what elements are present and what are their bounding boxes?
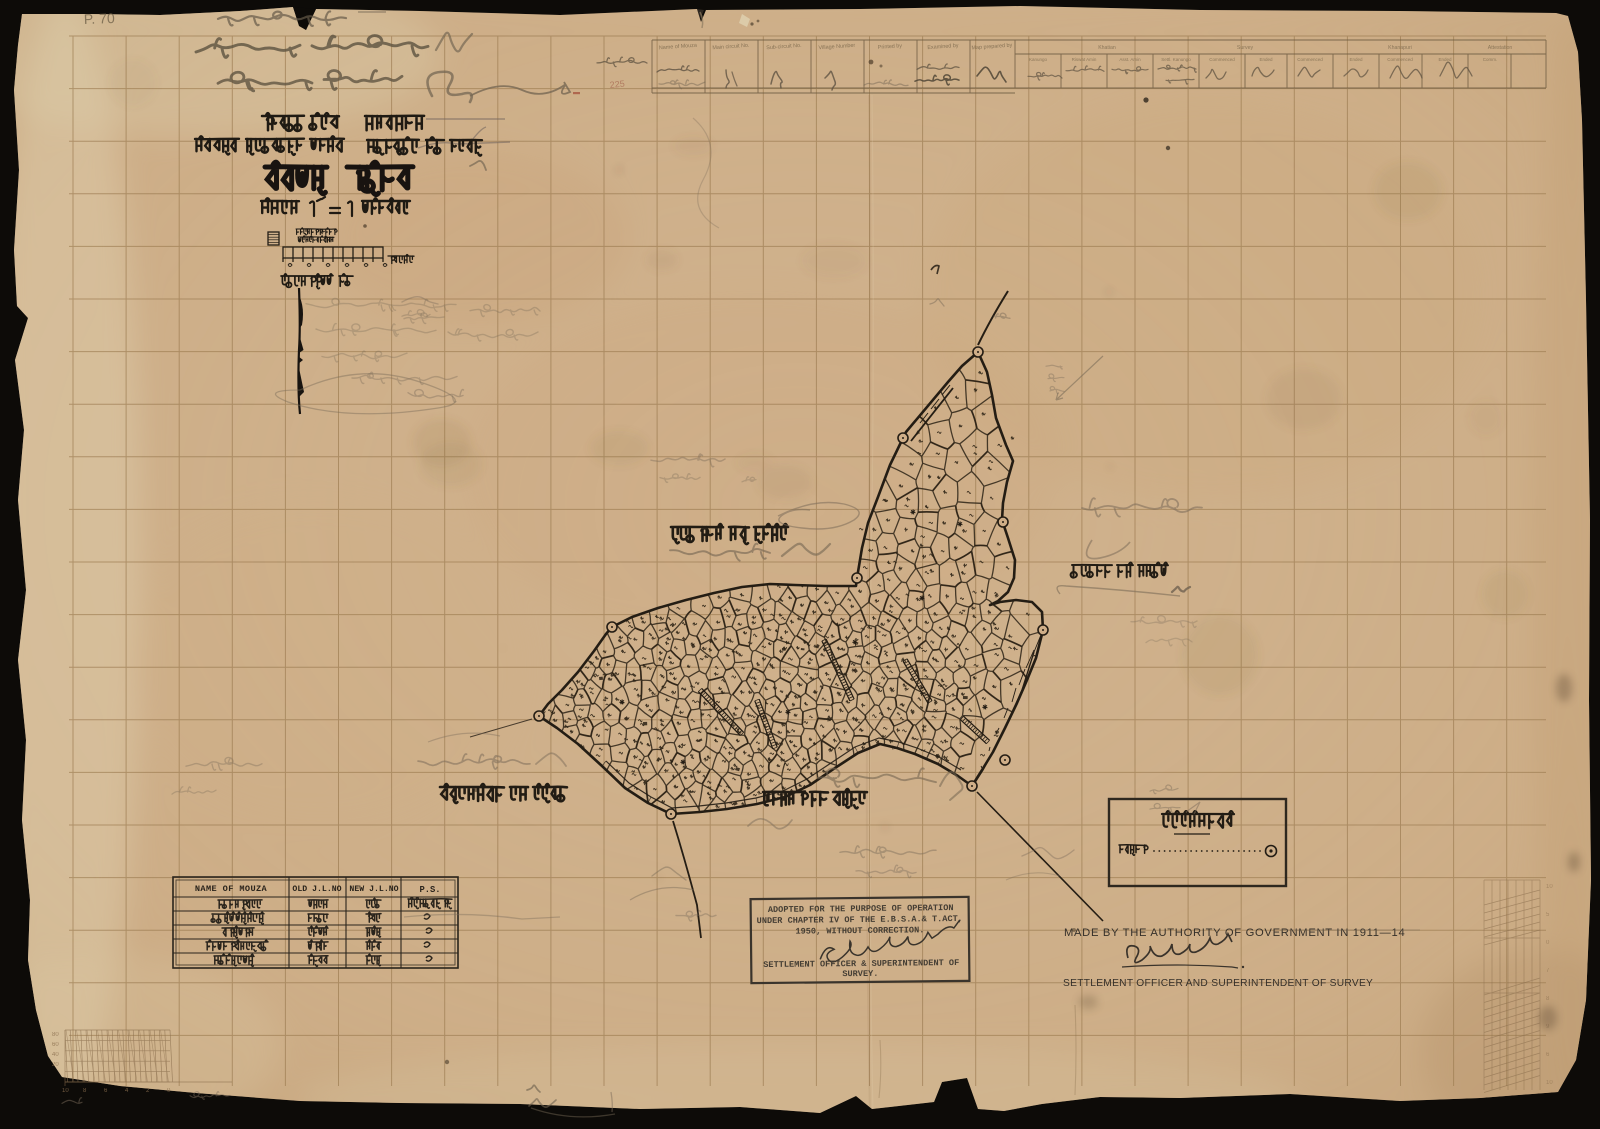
svg-text:NAME OF MOUZA: NAME OF MOUZA [195, 884, 268, 894]
svg-text:Attestation: Attestation [1488, 45, 1513, 51]
svg-text:60: 60 [52, 1042, 59, 1048]
svg-text:MADE BY THE AUTHORITY OF GOVER: MADE BY THE AUTHORITY OF GOVERNMENT IN 1… [1064, 927, 1405, 939]
svg-text:Survey: Survey [1237, 45, 1254, 51]
svg-text:SURVEY.: SURVEY. [842, 969, 878, 979]
svg-text:225: 225 [609, 78, 625, 90]
svg-text:P. 70: P. 70 [84, 10, 116, 27]
svg-text:40: 40 [52, 1052, 59, 1058]
svg-text:Ended: Ended [1349, 57, 1363, 62]
svg-text:10: 10 [1546, 1080, 1553, 1086]
svg-text:Settl. Kanungo: Settl. Kanungo [1161, 57, 1191, 62]
svg-text:Riswat Amin: Riswat Amin [1072, 57, 1097, 62]
svg-text:SETTLEMENT OFFICER AND SUPERIN: SETTLEMENT OFFICER AND SUPERINTENDENT OF… [1063, 978, 1373, 989]
svg-text:Commenced: Commenced [1387, 57, 1413, 62]
svg-text:P.S.: P.S. [419, 885, 440, 895]
svg-text:20: 20 [52, 1062, 59, 1068]
svg-text:Khanapuri: Khanapuri [1388, 45, 1412, 51]
svg-text:1950, WITHOUT CORRECTION.: 1950, WITHOUT CORRECTION. [795, 925, 924, 936]
svg-text:Comm.: Comm. [1483, 57, 1498, 62]
svg-text:OLD J.L.NO: OLD J.L.NO [292, 885, 341, 894]
svg-text:ADOPTED FOR THE PURPOSE OF OPE: ADOPTED FOR THE PURPOSE OF OPERATION [768, 903, 954, 915]
svg-text:Khatian: Khatian [1098, 45, 1116, 51]
svg-text:10: 10 [62, 1088, 69, 1094]
svg-text:80: 80 [52, 1032, 59, 1038]
svg-text:Asst. Amin: Asst. Amin [1119, 57, 1141, 62]
svg-text:Commenced: Commenced [1297, 57, 1323, 62]
svg-text:Commenced: Commenced [1209, 57, 1235, 62]
svg-text:10: 10 [1546, 884, 1553, 890]
svg-text:Ended: Ended [1438, 57, 1452, 62]
svg-text:NEW J.L.NO: NEW J.L.NO [349, 885, 398, 894]
svg-text:Kanungo: Kanungo [1029, 57, 1048, 62]
svg-text:Ended: Ended [1259, 57, 1273, 62]
